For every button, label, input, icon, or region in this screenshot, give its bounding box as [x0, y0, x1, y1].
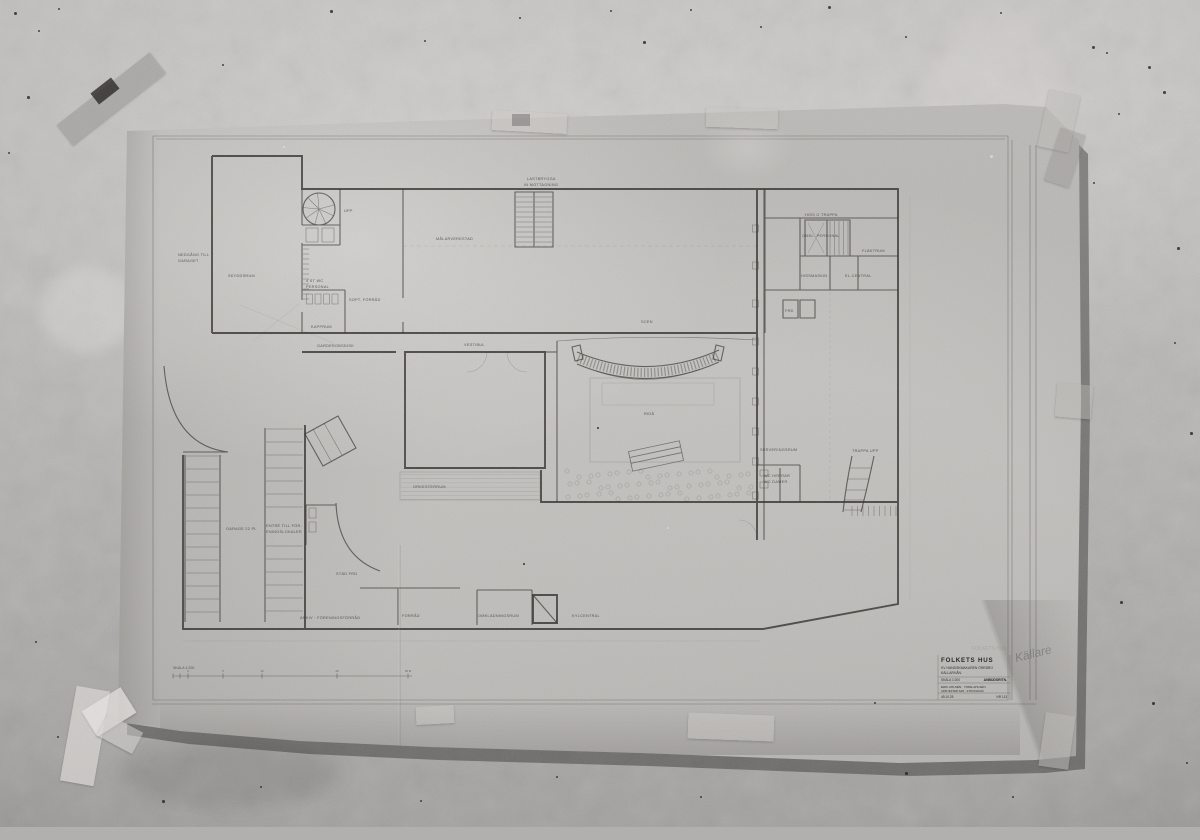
dust-speck [1120, 601, 1123, 604]
dust-speck [330, 10, 333, 13]
dust-speck [690, 9, 692, 11]
room-label: PERSONAL [306, 285, 329, 289]
table-circle [659, 493, 663, 497]
dust-speck [35, 641, 37, 643]
title-block-project: FOLKETS HUS [941, 657, 993, 664]
wc-fixture [315, 294, 321, 304]
spiral-stair-tread [318, 193, 319, 209]
dust-speck [1152, 702, 1155, 705]
table-circle [578, 494, 582, 498]
dust-speck [14, 12, 17, 15]
dust-speck [1000, 12, 1002, 14]
title-block-date: 49.10.25 [941, 695, 954, 699]
room-label: TRAPPA UPP [852, 449, 879, 453]
dust-speck [760, 26, 762, 28]
title-block-number: NR 113 [996, 695, 1007, 699]
table-circle [706, 482, 710, 486]
table-circle [635, 495, 639, 499]
spiral-stair-tread [303, 208, 319, 209]
dust-speck [905, 36, 907, 38]
table-circle [608, 472, 612, 476]
dust-speck [1174, 342, 1176, 344]
dust-speck [424, 40, 426, 42]
wc-fixture [332, 294, 338, 304]
spiral-stair-tread [319, 209, 334, 216]
table-circle [568, 482, 572, 486]
room-label: VESTIBUL [464, 343, 485, 347]
table-circle [606, 485, 610, 489]
room-label: OMKL. PERSONAL [802, 234, 840, 238]
handwritten-note: Källare [1013, 642, 1053, 665]
room-label: HISSMASKIN [801, 274, 827, 278]
dust-speck [556, 776, 558, 778]
dust-speck [420, 800, 422, 802]
table-circle [618, 484, 622, 488]
scale-tick-label: 20 [335, 669, 339, 673]
title-block: FOLKETS HUS FOLKETS HUS KV HANDSKMAKAREN… [938, 646, 1010, 700]
room-label: ORKESTERRUM [413, 485, 446, 489]
room-label: MÅLARVERKSTAD [436, 236, 473, 241]
table-circle [697, 496, 701, 500]
title-block-scale: SKALA 1:200 [941, 678, 960, 682]
floor-plan-drawing: SKALA 1:200 05102030 M LASTBRYGGAIN MOTT… [0, 0, 1200, 827]
room-label: WC HERRAR [764, 474, 790, 478]
dust-speck [700, 796, 702, 798]
drawing-frame [152, 136, 1036, 704]
dust-speck [1106, 52, 1108, 54]
room-label: ENINGSLOKALER [266, 530, 302, 534]
dust-speck [610, 10, 612, 12]
interior-walls [164, 189, 898, 625]
dust-speck [8, 152, 10, 154]
table-circle [709, 495, 713, 499]
table-circle [666, 492, 670, 496]
room-label: EL-CENTRAL [845, 274, 872, 278]
scale-bar-ticks: 05102030 M [173, 669, 412, 679]
room-label: SERVERINGSRUM [760, 448, 797, 452]
title-block-stamp: ANBUDSRITN. [984, 678, 1007, 682]
table-circle [675, 485, 679, 489]
table-circle [739, 473, 743, 477]
table-circle [728, 493, 732, 497]
title-block-architects: ERIK AHLSÉN · TORE AHLSÉN [941, 684, 986, 689]
room-label: ENTRÉ TILL FÖR- [266, 523, 303, 528]
dust-speck [828, 6, 831, 9]
table-circle [696, 470, 700, 474]
table-circle [585, 493, 589, 497]
table-circle [749, 485, 753, 489]
table-circle [668, 486, 672, 490]
dust-speck [38, 30, 40, 32]
room-label: GARAGE 22 PL [226, 527, 257, 531]
table-circle [599, 486, 603, 490]
spiral-stair-tread [308, 198, 319, 209]
table-circle [658, 474, 662, 478]
table-circle [566, 495, 570, 499]
room-label: KYLCENTRAL [572, 614, 600, 618]
tape-strip [90, 77, 119, 104]
room-label: HISS O TRAPPA [805, 213, 838, 217]
table-circle [725, 480, 729, 484]
table-circle [656, 480, 660, 484]
room-label: SKYDDSRUM [228, 274, 255, 278]
dust-speck [1186, 762, 1188, 764]
room-label: FRD [785, 309, 794, 313]
dust-speck [1177, 247, 1180, 250]
table-circle [565, 469, 569, 473]
table-circle [735, 492, 739, 496]
thin-linework [183, 196, 910, 641]
table-circle [587, 480, 591, 484]
table-circle [637, 482, 641, 486]
table-circle [646, 475, 650, 479]
title-block-floor: KÄLLARVÅN. [941, 670, 962, 675]
spiral-stair-tread [319, 209, 326, 224]
room-label: NEDGÅNG TILL [178, 252, 209, 257]
table-circle [737, 486, 741, 490]
room-label: SCEN [641, 320, 653, 324]
dust-speck [57, 736, 59, 738]
table-circle [627, 470, 631, 474]
table-circle [616, 497, 620, 501]
table-circle [589, 474, 593, 478]
table-circle [628, 496, 632, 500]
room-label: GARAGET [178, 259, 199, 263]
room-labels: LASTBRYGGAIN MOTTAGNINGNEDGÅNG TILLGARAG… [178, 177, 885, 620]
table-circle [609, 491, 613, 495]
room-label: KAPPRUM [311, 325, 332, 329]
photo-of-floor-plan: SKALA 1:200 05102030 M LASTBRYGGAIN MOTT… [0, 0, 1200, 827]
dust-speck [643, 41, 646, 44]
room-label: IN MOTTAGNING [524, 183, 558, 187]
table-circle [708, 469, 712, 473]
table-circle [625, 483, 629, 487]
dust-speck [1163, 91, 1166, 94]
table-circle [727, 474, 731, 478]
room-label: SOPT. FÖRRÅD [349, 297, 381, 302]
room-label: LASTBRYGGA [527, 177, 556, 181]
tape-strip [60, 686, 110, 786]
table-circle [715, 475, 719, 479]
table-circle [685, 497, 689, 501]
table-circle [596, 473, 600, 477]
table-circle [647, 494, 651, 498]
blueprint-sheet: SKALA 1:200 05102030 M LASTBRYGGAIN MOTT… [0, 0, 1200, 827]
dust-speck [905, 772, 908, 775]
table-circle [716, 494, 720, 498]
room-label: 4 ST WC [306, 279, 323, 283]
table-circle [689, 471, 693, 475]
table-circle [718, 481, 722, 485]
dust-speck [27, 96, 30, 99]
table-circle [597, 492, 601, 496]
dust-speck [1092, 46, 1095, 49]
table-circle [649, 481, 653, 485]
dust-speck [519, 17, 521, 19]
table-circle [678, 491, 682, 495]
generated-linework [186, 193, 896, 612]
table-circle [746, 472, 750, 476]
table-circle [747, 491, 751, 495]
title-block-ghost: FOLKETS HUS [972, 646, 1007, 652]
table-circle [615, 471, 619, 475]
table-circle [575, 481, 579, 485]
spiral-stair-tread [319, 205, 334, 209]
dust-speck [1190, 432, 1193, 435]
dust-speck [260, 786, 262, 788]
table-circle [677, 472, 681, 476]
scale-bar-label: SKALA 1:200 [173, 666, 194, 670]
dust-speck [1118, 113, 1120, 115]
dust-speck [58, 8, 60, 10]
scale-tick-label: 10 [260, 669, 264, 673]
dust-speck [1093, 182, 1095, 184]
wall-stain [120, 738, 340, 808]
title-block-address: KV HANDSKMAKAREN ÖREBRO [941, 666, 993, 670]
room-label: OMKLÄDNINGSRUM [478, 614, 519, 618]
room-label: FLÄKTRUM [862, 249, 885, 253]
room-label: ARKIV · FÖRENINGSFÖRRÅD [300, 615, 360, 620]
dust-speck [162, 800, 165, 803]
piano-outline [628, 441, 683, 471]
room-label: WC DAMER [764, 480, 788, 484]
room-label: FÖRRÅD [402, 613, 420, 618]
table-circle [665, 473, 669, 477]
table-circle [687, 484, 691, 488]
dust-speck [1012, 796, 1014, 798]
dust-speck [1148, 66, 1151, 69]
scale-tick-label: 5 [222, 669, 224, 673]
table-circle [699, 483, 703, 487]
wc-fixture [324, 294, 330, 304]
room-label: STÄD FRD [336, 572, 357, 576]
room-label: RIDÅ [644, 411, 654, 416]
room-label: GARDEROBSDISK [317, 344, 354, 348]
title-block-firm: ARKITEKTER SAR · STOCKHOLM [941, 689, 984, 693]
room-label: UPP [344, 209, 353, 213]
scale-tick-label: 30 M [405, 669, 412, 673]
wall-stain [40, 268, 135, 353]
dust-speck [222, 64, 224, 66]
table-circle [577, 475, 581, 479]
